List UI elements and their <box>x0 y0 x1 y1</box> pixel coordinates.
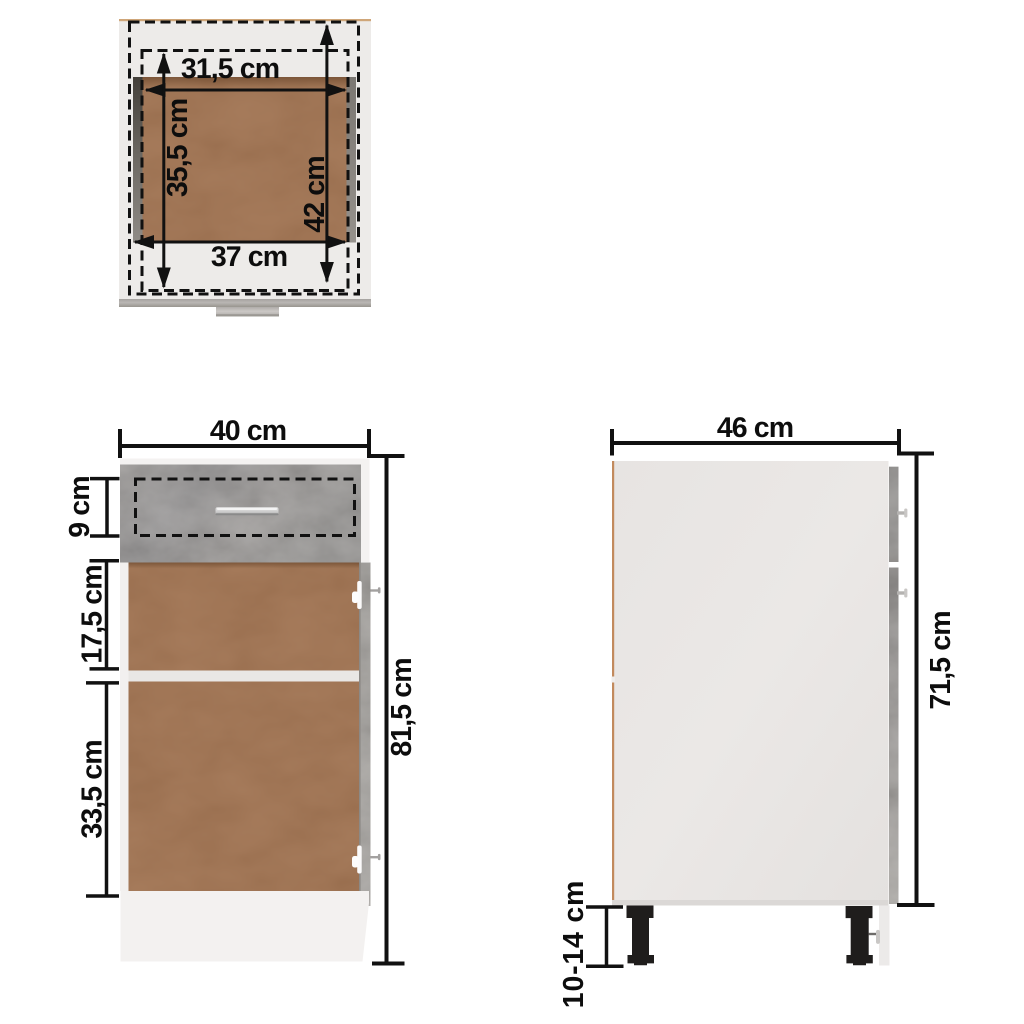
svg-text:37 cm: 37 cm <box>211 241 287 273</box>
svg-text:35,5 cm: 35,5 cm <box>162 99 194 197</box>
svg-text:33,5 cm: 33,5 cm <box>77 740 109 838</box>
svg-text:40 cm: 40 cm <box>210 415 286 447</box>
svg-text:42 cm: 42 cm <box>299 156 331 232</box>
svg-text:31,5 cm: 31,5 cm <box>181 53 279 85</box>
svg-text:81,5 cm: 81,5 cm <box>386 658 418 756</box>
svg-text:71,5 cm: 71,5 cm <box>925 611 957 709</box>
svg-text:17,5 cm: 17,5 cm <box>77 565 109 663</box>
svg-text:10-14 cm: 10-14 cm <box>558 880 590 1008</box>
svg-text:46 cm: 46 cm <box>717 412 793 444</box>
svg-text:9 cm: 9 cm <box>64 476 96 537</box>
